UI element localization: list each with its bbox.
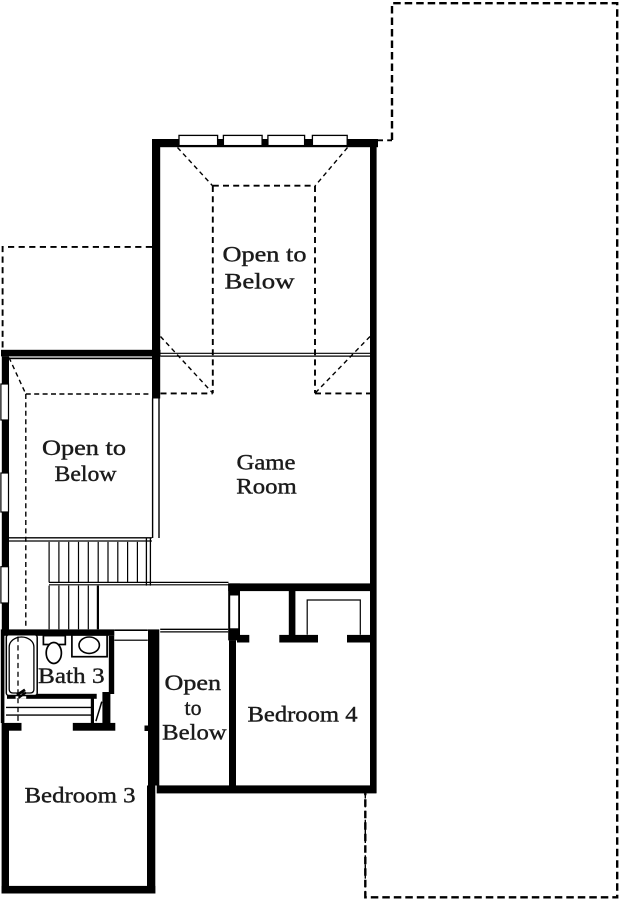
svg-text:Bath 3: Bath 3 (38, 663, 105, 688)
svg-text:Open to: Open to (42, 435, 126, 460)
svg-text:Room: Room (236, 473, 297, 498)
svg-text:to: to (185, 695, 202, 720)
svg-text:Game: Game (237, 449, 296, 474)
svg-text:Bedroom 4: Bedroom 4 (248, 701, 358, 726)
svg-text:Below: Below (55, 461, 118, 486)
svg-text:Below: Below (225, 268, 296, 293)
svg-text:Open to: Open to (223, 242, 307, 267)
svg-text:Open: Open (165, 670, 222, 695)
svg-text:Below: Below (162, 719, 227, 744)
svg-text:Bedroom 3: Bedroom 3 (25, 783, 136, 808)
